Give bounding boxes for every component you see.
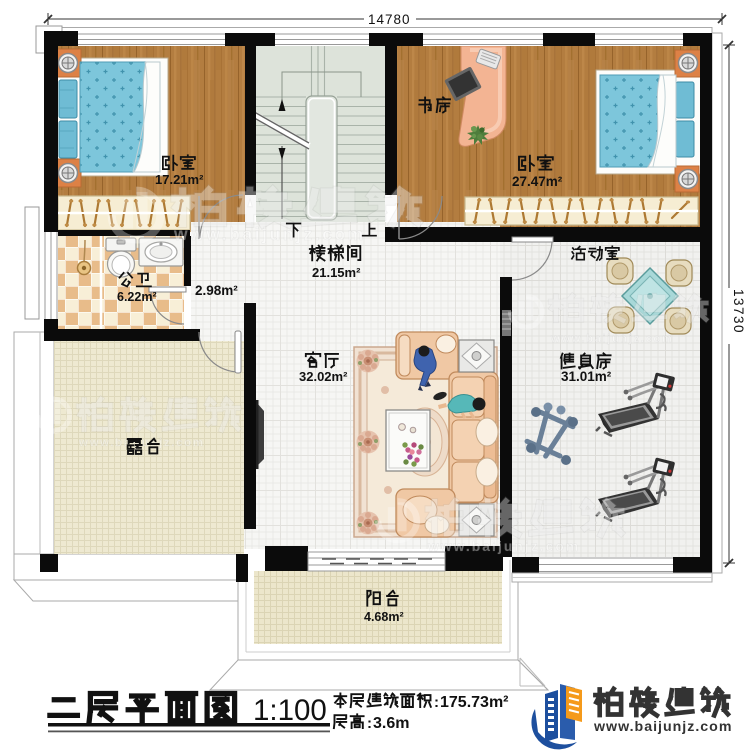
svg-text:27.47m²: 27.47m² — [512, 174, 563, 189]
svg-text::: : — [434, 694, 439, 711]
svg-text:6.22m²: 6.22m² — [117, 290, 157, 304]
svg-text:www.baijunjz.com: www.baijunjz.com — [427, 539, 580, 554]
svg-text:4.68m²: 4.68m² — [364, 610, 404, 624]
svg-text:www.baijunjz.com: www.baijunjz.com — [593, 719, 732, 735]
svg-text:17.21m²: 17.21m² — [155, 172, 204, 187]
svg-text:www.baijunjz.com: www.baijunjz.com — [173, 224, 366, 244]
svg-text:32.02m²: 32.02m² — [299, 369, 348, 384]
svg-text::: : — [367, 715, 372, 732]
svg-text:21.15m²: 21.15m² — [312, 265, 361, 280]
svg-text:2.98m²: 2.98m² — [195, 283, 238, 298]
svg-text:13730: 13730 — [731, 289, 746, 334]
svg-text:www.baijunjz.com: www.baijunjz.com — [550, 333, 673, 345]
svg-text:14780: 14780 — [368, 12, 411, 27]
svg-text:31.01m²: 31.01m² — [561, 369, 612, 384]
svg-text:3.6m: 3.6m — [373, 715, 409, 732]
svg-text:1:100: 1:100 — [253, 694, 327, 727]
svg-text:175.73m²: 175.73m² — [440, 694, 509, 711]
